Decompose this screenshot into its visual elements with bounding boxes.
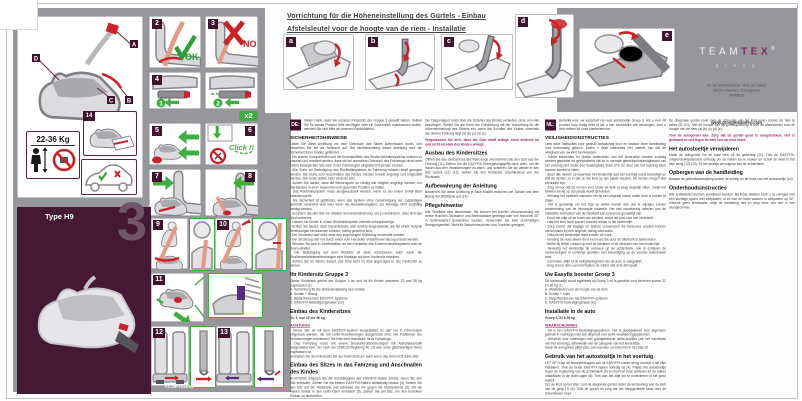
figure-4-left-box: 4 1 (149, 72, 201, 109)
brand-logo-team: TEAM (699, 46, 741, 57)
callout-b: B (127, 99, 132, 105)
step-label-12: 12 (153, 328, 165, 338)
heading-care-nl: Onderhoudsinstructies (669, 185, 795, 192)
figure-11-box: 11 (151, 273, 204, 322)
heading-use-nl: Gebruik van het autostoeltje in het voer… (545, 354, 666, 361)
figure-14-box: 14 (83, 111, 137, 156)
callout-c: C (109, 99, 114, 105)
figure-c-box: c (441, 34, 513, 90)
heading-seat-nl: Uw Easyfix booster Groep 3 (545, 272, 666, 279)
step-label-a: a (286, 37, 296, 47)
figure-13-box: 13 (216, 326, 253, 386)
click-label: Click !! (229, 143, 255, 152)
scan-corner-artifact (0, 0, 38, 30)
figure-8-box: 8 (205, 169, 258, 216)
green-step-2: 2 (216, 101, 220, 108)
booster-product-illustration (25, 265, 143, 377)
column-dutch-1: NL: Bedankt voor uw aanschaf van een aut… (545, 119, 666, 397)
brand-address: ZI. de Montbertrand - Rue du Claret 3823… (708, 83, 767, 98)
heading-removal-nl: Het autostoeltje verwijderen (669, 146, 795, 153)
language-badge-nl: NL: (545, 120, 556, 131)
step-label-e: e (662, 31, 672, 41)
hook-stow-detail-illustration (255, 327, 283, 387)
weight-label: 22-36 Kg (31, 135, 75, 146)
figure-10-box: 10 (215, 218, 252, 269)
figure-d-box: d (515, 14, 574, 98)
figure-4-right-box: 2 (205, 72, 258, 109)
buckle-detail-illustration (209, 274, 262, 317)
heading-safety-de: SICHERHEITSHINWEISE (290, 135, 422, 141)
figure-13-inset (254, 326, 284, 388)
weight-sign: 22-36 Kg (26, 131, 80, 179)
warning-heading-de: ACHTUNG! (290, 323, 422, 328)
figure-b-box: b (365, 34, 435, 90)
figure-12-inset (190, 326, 216, 388)
accent-de: Vergewissern Sie sich, dass der Gurt str… (425, 138, 539, 147)
figure-11-zoom-box (208, 273, 263, 318)
step-label-6: 6 (245, 126, 255, 136)
step-label-9: 9 (153, 220, 163, 230)
type-label: Type H9 (45, 212, 74, 221)
neck-clearance-detail-illustration (253, 219, 286, 270)
hook-release-detail-illustration (191, 327, 215, 387)
brand-group-label: g r o u p (716, 63, 758, 68)
step-label-8: 8 (245, 172, 255, 182)
safety-body-nl: Lees deze instructies voor gebruik aanda… (545, 142, 666, 268)
manual-body-de: Bewahren Sie diese Anleitung je nach Mod… (425, 191, 539, 200)
step-label-4: 4 (152, 75, 162, 85)
person-height-prohibition-icon (29, 147, 77, 173)
step-label-14: 14 (83, 111, 95, 121)
registered-mark: ® (771, 46, 775, 52)
figure-1-box: 1 A D C B 22-36 Kg (17, 16, 143, 198)
scanned-manual-page: { "header": { "line_de": "Vorrichtung fü… (0, 0, 802, 401)
continuation-de: Der Diagonalgurt muss über die Schulter … (425, 119, 539, 136)
use-body-nl: LET OP: Klap de beschermkapjes van de EA… (545, 361, 666, 396)
intro-nl: Bedankt voor uw aanschaf van een autosto… (545, 119, 666, 132)
x2-badge: x2 (239, 111, 258, 121)
group-number: 3 (117, 191, 147, 253)
manual-sheet: 1 A D C B 22-36 Kg (6, 3, 798, 399)
car-positions-box (81, 159, 137, 195)
type-panel: Type H9 3 FC26FRDENL (17, 207, 151, 394)
brand-logo-tex: TEX (741, 46, 771, 57)
brand-logo: TEAMTEX® (671, 46, 802, 57)
heading-removal-de: Ausbau des Kindersitzes (425, 150, 539, 157)
seat-body-nl: Dit autostoeltje wordt ingedeeld bij Gro… (545, 279, 666, 305)
heading-belt-de: Einbau des Sitzes in das Fahrzeug und An… (290, 362, 422, 376)
heading-care-de: Pflegehinweise (425, 202, 539, 209)
install-sub-nl: Groep 3, 22 à 36 kg (545, 316, 666, 320)
figure-a-box: a (283, 34, 354, 90)
figure-10-inset (252, 218, 287, 271)
belt-guide-step-e-illustration (579, 28, 675, 92)
figure-7-box: 7 (149, 169, 201, 216)
document-code: FC26FRDENL (166, 384, 195, 389)
seat-body-de: Dieser Kindersitz gehört der Gruppe 3 an… (290, 279, 422, 305)
step-label-7: 7 (152, 172, 162, 182)
heading-install-de: Einbau des Kindersitzes (290, 309, 422, 316)
warning-body-nl: - Dit is een EASYFIX-bevestigingssysteem… (545, 329, 666, 351)
step-label-d: d (518, 17, 528, 27)
safety-body-de: Lesen Sie diese Anleitung vor dem Gebrau… (290, 142, 422, 268)
callout-a: A (132, 43, 137, 49)
car-seating-positions-illustration (82, 160, 136, 194)
removal-body-de: Öffnen Sie das Gurtschloss des Fahrzeugs… (425, 158, 539, 180)
figure-9-inset (189, 218, 215, 271)
accent-nl: Trek de autogordel aan. Zorg dat de gord… (669, 134, 795, 143)
figure-6-box: 6 Click !! (205, 123, 258, 165)
care-body-nl: Alle textieldelen kunnen verwijderd word… (669, 193, 795, 210)
warning-body-de: - Dieser Sitz ist mit dem EASYFIX-System… (290, 329, 422, 359)
manual-body-nl: Bewaar de gebruiksaanwijzing tussen de s… (669, 178, 795, 182)
figure-12-box: 12 (151, 326, 189, 386)
continuation-nl: De diagonale gordel moet over de schoude… (669, 119, 795, 132)
easyfix-hook-step2-illustration: 2 (205, 72, 258, 109)
header-line-de: Vorrichtung für die Höheneinstellung des… (287, 13, 486, 20)
heading-safety-nl: VEILIGHEIDSINSTRUCTIES (545, 135, 666, 141)
warning-heading-nl: WAARSCHUWING (545, 323, 666, 328)
figure-3-box: 3 NO (205, 16, 258, 68)
figure-5-box: 5 (149, 123, 201, 165)
figure-2-box: 2 OK (149, 16, 201, 68)
column-dutch-2: De diagonale gordel moet over de schoude… (669, 119, 795, 397)
ok-badge: OK (185, 52, 199, 62)
heading-manual-nl: Opbergen van de handleiding (669, 170, 795, 177)
column-german-1: DE: Vielen Dank, dass Sie unseren Kinder… (290, 119, 422, 397)
heading-manual-de: Aufbewahrung der Anleitung (425, 183, 539, 190)
callout-d: D (34, 57, 39, 63)
column-german-2: Der Diagonalgurt muss über die Schulter … (425, 119, 539, 397)
step-label-2: 2 (152, 19, 162, 29)
language-badge-de: DE: (290, 120, 301, 131)
step-label-5: 5 (152, 126, 162, 136)
figure-e-box: e (579, 28, 675, 92)
header-line-nl: Afstelsleutel voor de hoogte van de riem… (287, 26, 466, 33)
removal-body-nl: Maak de autogordel los en haal hem uit d… (669, 154, 795, 167)
heading-seat-de: Ihr Kindersitz Gruppe 3 (290, 272, 422, 279)
step-label-c: c (444, 37, 454, 47)
step-label-13: 13 (218, 328, 230, 338)
heading-install-nl: Installatie in de auto (545, 309, 666, 316)
step-label-3: 3 (208, 19, 218, 29)
step-label-11: 11 (153, 275, 165, 285)
figure-9-box: 9 (151, 218, 188, 269)
install-sub-de: Gr. 3, von 22 bis 36 kg (290, 316, 422, 320)
shoulder-belt-detail-illustration (190, 219, 214, 270)
step-label-10: 10 (217, 220, 229, 230)
no-badge: NO (243, 39, 257, 49)
green-step-1: 1 (159, 101, 163, 108)
belt-body-de: ACHTUNG: Klappen Sie die Schutzkappen de… (290, 377, 422, 397)
step-label-b: b (368, 37, 378, 47)
intro-de: Vielen Dank, dass Sie unseren Kindersitz… (290, 119, 422, 132)
care-body-de: Alle Textilteile sind abnehmbar. Sie kön… (425, 210, 539, 227)
